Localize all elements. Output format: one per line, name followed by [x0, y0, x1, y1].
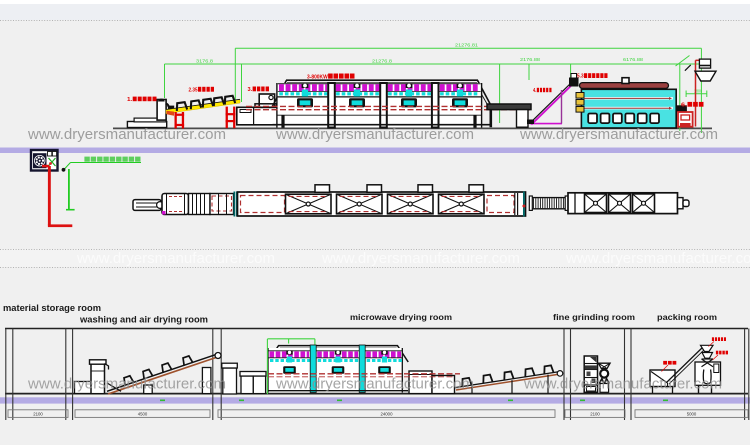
- svg-text:2.35: 2.35: [189, 88, 198, 94]
- svg-text:4500: 4500: [138, 412, 148, 417]
- svg-text:fine grinding room: fine grinding room: [553, 312, 635, 322]
- svg-text:6.: 6.: [681, 102, 688, 108]
- svg-text:2176.88: 2176.88: [520, 57, 541, 62]
- svg-text:1.: 1.: [127, 97, 133, 103]
- svg-text:4.: 4.: [533, 88, 537, 94]
- svg-text:5.3: 5.3: [577, 74, 584, 80]
- svg-text:6176.88: 6176.88: [623, 57, 644, 62]
- svg-text:www.dryersmanufacturer.com: www.dryersmanufacturer.com: [519, 126, 718, 143]
- svg-text:www.dryersmanufacturer.com: www.dryersmanufacturer.com: [27, 126, 226, 143]
- svg-text:www.dryersmanufacturer.com: www.dryersmanufacturer.com: [27, 376, 226, 393]
- svg-text:www.dryersmanufacturer.com: www.dryersmanufacturer.com: [523, 376, 722, 393]
- svg-text:3176.8: 3176.8: [196, 59, 214, 64]
- svg-text:www.dryersmanufacturer.com: www.dryersmanufacturer.com: [76, 250, 275, 267]
- svg-text:3.: 3.: [248, 87, 253, 93]
- svg-text:3-800KW: 3-800KW: [307, 74, 328, 80]
- svg-text:material storage room: material storage room: [3, 302, 101, 313]
- svg-text:2100: 2100: [590, 412, 600, 417]
- svg-text:www.dryersmanufacturer.com: www.dryersmanufacturer.com: [565, 250, 750, 267]
- svg-text:www.dryersmanufacturer.com: www.dryersmanufacturer.com: [321, 250, 520, 267]
- svg-text:21276.81: 21276.81: [455, 43, 479, 48]
- svg-text:24000: 24000: [381, 412, 394, 417]
- svg-text:microwave drying room: microwave drying room: [350, 312, 452, 322]
- svg-text:2100: 2100: [33, 412, 43, 417]
- svg-text:21276.8: 21276.8: [372, 59, 393, 64]
- svg-text:packing room: packing room: [657, 312, 717, 322]
- svg-text:washing and air drying room: washing and air drying room: [79, 314, 208, 325]
- svg-text:5000: 5000: [687, 412, 697, 417]
- svg-text:www.dryersmanufacturer.com: www.dryersmanufacturer.com: [275, 126, 474, 143]
- svg-text:www.dryersmanufacturer.com: www.dryersmanufacturer.com: [275, 376, 474, 393]
